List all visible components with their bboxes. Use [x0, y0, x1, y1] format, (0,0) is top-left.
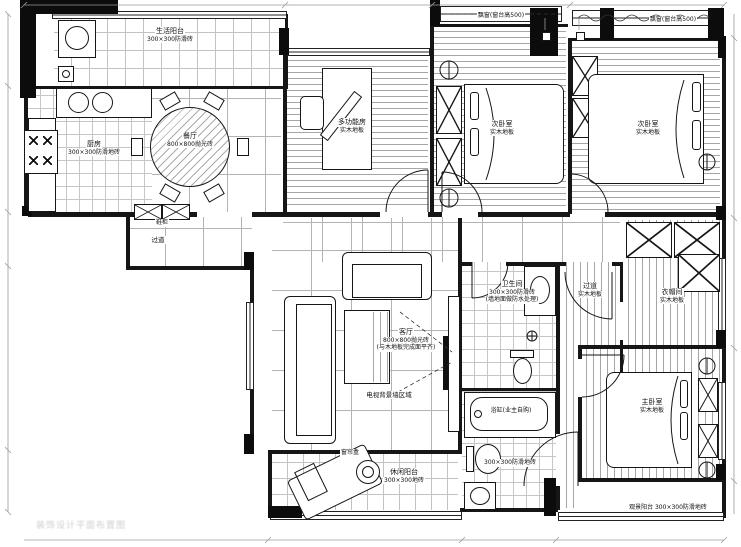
wall-column	[716, 464, 726, 480]
burner-icon	[29, 156, 38, 165]
pipe-box-symbol	[576, 32, 585, 41]
wall-segment	[620, 262, 623, 302]
sink-bowl-icon	[92, 92, 113, 113]
basin-icon	[470, 487, 490, 505]
pillow-symbol	[692, 82, 701, 112]
room-label-kitchen: 厨房300×300防滑地砖	[52, 140, 136, 156]
floor-drain-icon	[62, 70, 70, 78]
window	[246, 302, 254, 390]
wall-column	[20, 0, 36, 98]
bay-window-label-left: 飘窗(窗台高500)	[458, 12, 544, 20]
wall-segment	[428, 212, 442, 217]
wall-segment	[28, 212, 127, 217]
floor-plan: 生活阳台300×300防滑砖 厨房300×300防滑地砖 餐厅800×800抛光…	[0, 0, 741, 547]
wall-column	[716, 206, 726, 220]
room-label-closet: 衣帽间实木地板	[634, 288, 710, 304]
wall-segment	[462, 388, 556, 391]
watermark: 装饰设计平面布置图	[36, 518, 126, 531]
wall-segment	[126, 266, 254, 270]
toilet-bowl-symbol	[513, 358, 532, 384]
room-label-hall: 过道实木地板	[560, 282, 620, 298]
wall-column	[600, 8, 614, 40]
room-label-bath1: 卫生间300×300防滑砖(墙地面做防水处理)	[470, 280, 554, 304]
room-label-bedroom-a: 次卧室实木地板	[462, 120, 542, 136]
burner-icon	[43, 156, 52, 165]
nightstand-symbol	[698, 378, 718, 412]
wall-segment	[462, 262, 472, 266]
pillow-symbol	[680, 412, 688, 440]
sink-bowl-icon	[68, 92, 89, 113]
wall-column	[244, 434, 254, 454]
burner-icon	[43, 136, 52, 145]
wall-segment	[268, 454, 272, 514]
toilet-tank-symbol	[510, 350, 534, 358]
room-label-master: 主卧室实木地板	[614, 398, 690, 414]
wall-column	[268, 506, 302, 518]
washing-machine-drum-icon	[65, 26, 89, 50]
tv-cabinet-symbol	[448, 296, 460, 432]
wardrobe-symbol	[674, 222, 720, 258]
bathtub-label: 浴缸(业主自购)	[472, 407, 550, 415]
wall-segment	[283, 52, 287, 217]
wall-segment	[578, 349, 582, 359]
shoe-cabinet-symbol	[134, 204, 162, 220]
wardrobe-symbol	[436, 138, 462, 186]
shoe-cabinet-label: 鞋柜	[136, 219, 188, 227]
wardrobe-symbol	[678, 254, 720, 292]
wall-segment	[126, 215, 130, 268]
shoe-cabinet-symbol	[162, 204, 190, 220]
pillow-symbol	[470, 92, 479, 120]
room-label-study: 多功能房实木地板	[312, 118, 392, 134]
dining-chair-symbol	[237, 138, 249, 156]
wall-column	[20, 0, 118, 14]
room-label-living: 客厅800×800抛光砖(与木地板完成面平齐)	[350, 328, 462, 352]
room-label-bath2: 300×300防滑地砖	[458, 459, 562, 467]
wall-segment	[578, 397, 582, 478]
curtain-box-label: 窗帘盒	[328, 449, 372, 457]
sofa-seat-line	[352, 264, 422, 298]
wall-column	[244, 252, 254, 270]
nightstand-symbol	[698, 424, 718, 458]
pillow-symbol	[692, 120, 701, 150]
room-label-leisure-balcony: 休闲阳台300×300地砖	[362, 468, 446, 484]
wall-segment	[570, 38, 724, 41]
pipe-box-symbol	[542, 32, 551, 41]
room-label-dining: 餐厅800×800抛光砖	[152, 132, 228, 148]
wall-column	[716, 330, 726, 348]
wardrobe-symbol	[436, 86, 462, 134]
wall-segment	[578, 345, 724, 349]
room-label-service-balcony: 生活阳台300×300防滑砖	[120, 27, 220, 43]
wall-column	[544, 478, 556, 516]
wall-column	[279, 28, 289, 55]
wall-segment	[605, 212, 724, 217]
floor-hall-strip	[560, 348, 578, 508]
bay-window-label-right: 飘窗(窗台高500)	[630, 16, 716, 24]
room-label-view-balcony: 观景阳台 300×300防滑地砖	[612, 504, 724, 512]
wall-segment	[252, 212, 380, 217]
wall-segment	[430, 24, 434, 214]
wall-column	[718, 36, 726, 58]
tv-wall-label: 电视背景墙区域	[344, 391, 434, 399]
sofa-seat-line	[296, 304, 332, 436]
room-label-bedroom-b: 次卧室实木地板	[608, 120, 688, 136]
wall-segment	[556, 486, 560, 510]
wall-segment	[478, 212, 570, 217]
room-label-corridor: 过道	[136, 236, 180, 244]
window	[718, 382, 726, 460]
wall-segment	[722, 38, 726, 218]
wall-segment	[578, 478, 724, 482]
floor-hall-vert	[560, 262, 620, 348]
window	[287, 48, 430, 56]
window	[558, 512, 724, 521]
wall-column	[430, 0, 440, 26]
burner-icon	[29, 136, 38, 145]
wardrobe-symbol	[626, 222, 672, 258]
